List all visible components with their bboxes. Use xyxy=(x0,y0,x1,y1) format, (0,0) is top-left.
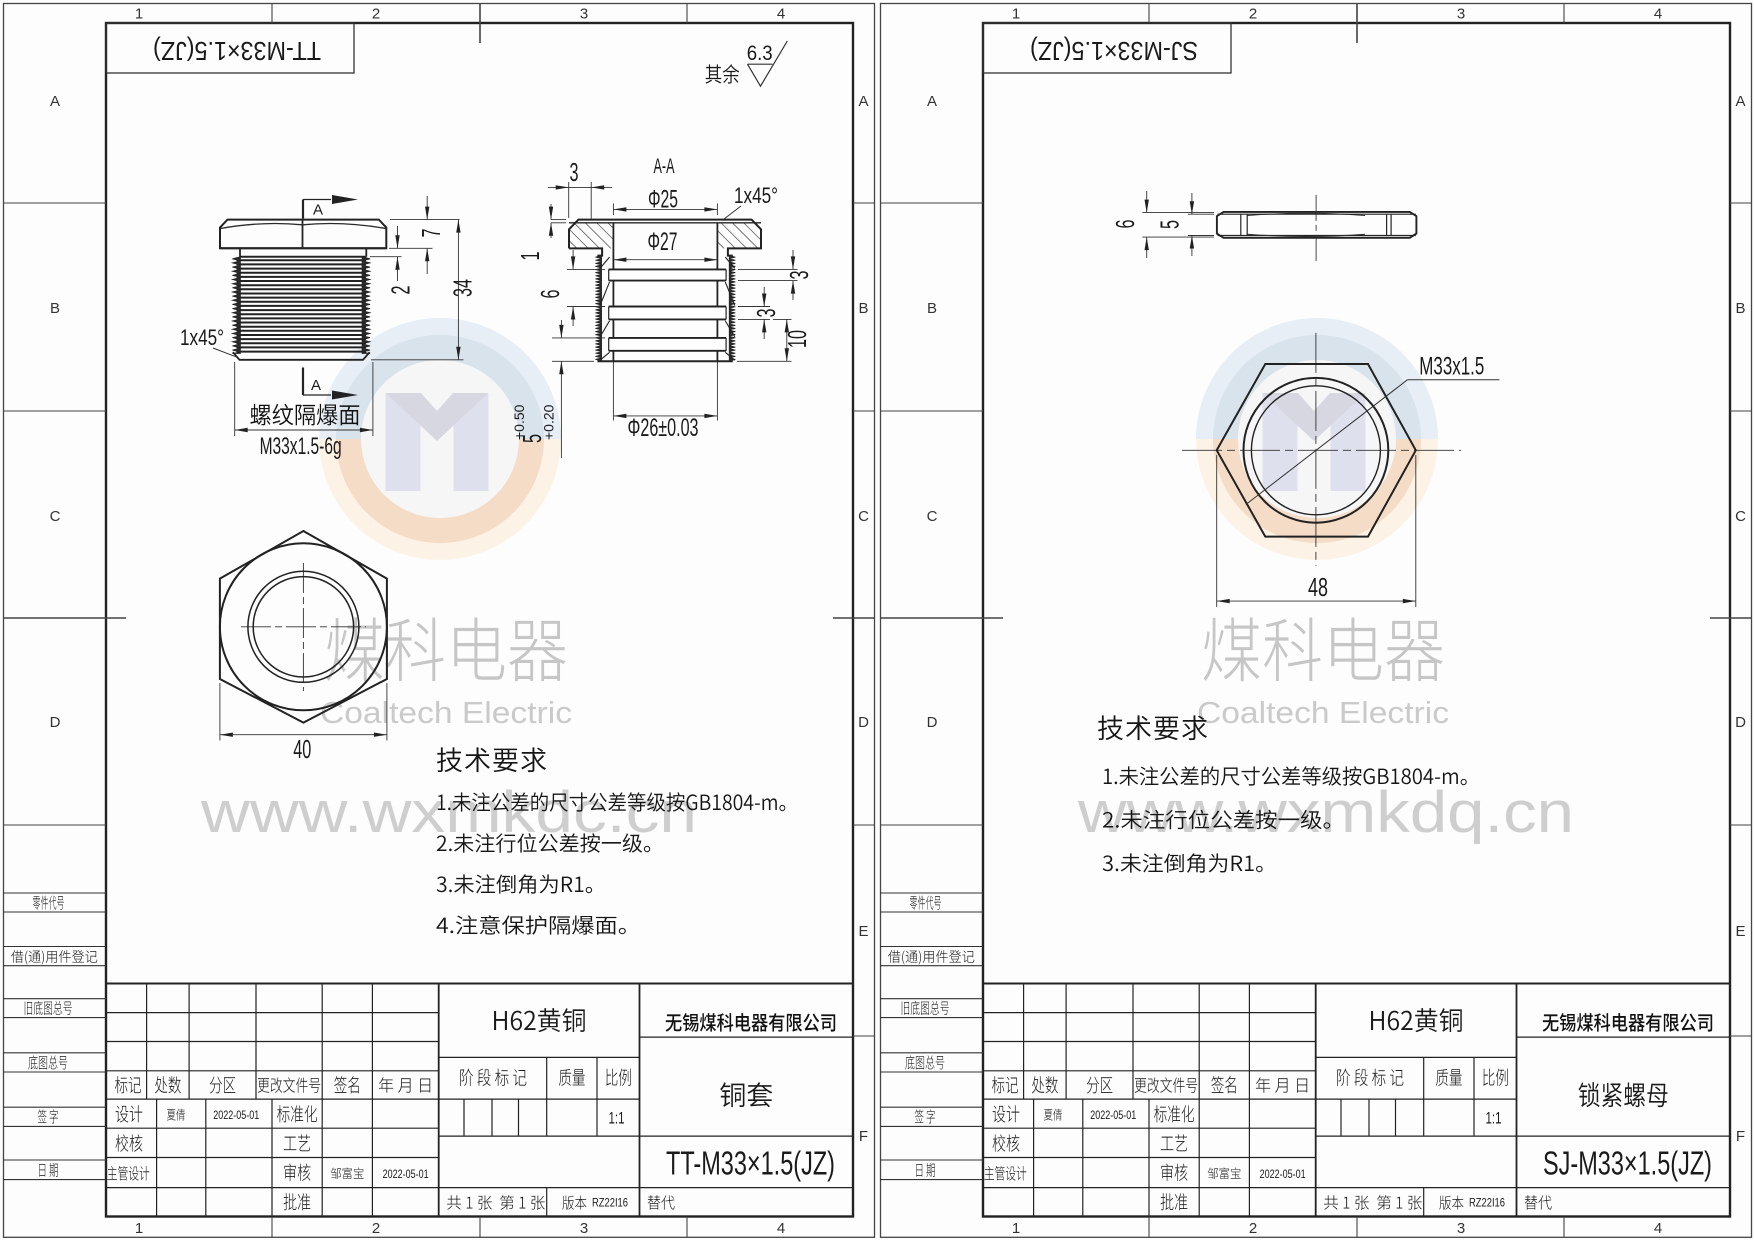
svg-text:2022-05-01: 2022-05-01 xyxy=(1090,1108,1136,1122)
svg-text:TT-M33×1.5(JZ): TT-M33×1.5(JZ) xyxy=(666,1145,835,1182)
svg-text:A: A xyxy=(313,202,323,219)
svg-text:D: D xyxy=(1735,714,1746,731)
svg-text:A: A xyxy=(1735,93,1745,110)
svg-text:3: 3 xyxy=(784,271,814,280)
svg-text:4: 4 xyxy=(777,6,785,23)
svg-text:A: A xyxy=(927,93,937,110)
svg-text:A-A: A-A xyxy=(654,155,675,178)
svg-text:1: 1 xyxy=(135,1220,143,1237)
svg-text:3: 3 xyxy=(1457,1220,1465,1237)
svg-text:www.wxmkdc.cn: www.wxmkdc.cn xyxy=(200,780,697,845)
svg-text:SJ-M33×1.5(JZ): SJ-M33×1.5(JZ) xyxy=(1543,1145,1712,1182)
svg-text:+0.20: +0.20 xyxy=(541,404,557,440)
svg-text:4: 4 xyxy=(777,1220,785,1237)
svg-text:F: F xyxy=(859,1128,868,1145)
svg-text:2: 2 xyxy=(372,6,380,23)
svg-text:3: 3 xyxy=(580,1220,588,1237)
svg-text:M33x1.5-6g: M33x1.5-6g xyxy=(260,433,342,460)
svg-text:C: C xyxy=(1735,508,1746,525)
svg-text:3: 3 xyxy=(580,6,588,23)
svg-text:+0.50: +0.50 xyxy=(511,404,527,440)
svg-text:TT-M33×1.5(JZ): TT-M33×1.5(JZ) xyxy=(153,36,321,66)
svg-text:E: E xyxy=(1735,923,1745,940)
svg-text:34: 34 xyxy=(448,279,478,297)
svg-text:2: 2 xyxy=(1249,6,1257,23)
svg-text:D: D xyxy=(858,714,869,731)
svg-text:3: 3 xyxy=(570,157,579,187)
svg-text:D: D xyxy=(927,714,938,731)
svg-text:1x45°: 1x45° xyxy=(734,183,778,208)
svg-text:B: B xyxy=(1735,300,1745,317)
svg-text:B: B xyxy=(927,300,937,317)
svg-text:D: D xyxy=(50,714,61,731)
svg-text:E: E xyxy=(858,923,868,940)
svg-text:1: 1 xyxy=(515,252,545,261)
svg-text:6: 6 xyxy=(1110,220,1140,229)
svg-text:RZ22I16: RZ22I16 xyxy=(1469,1196,1505,1210)
svg-text:B: B xyxy=(858,300,868,317)
svg-text:3: 3 xyxy=(751,309,781,318)
svg-text:6.3: 6.3 xyxy=(747,42,773,65)
svg-text:Φ25: Φ25 xyxy=(648,186,678,214)
svg-text:C: C xyxy=(858,508,869,525)
svg-text:SJ-M33×1.5(JZ): SJ-M33×1.5(JZ) xyxy=(1030,36,1198,66)
svg-text:5: 5 xyxy=(1155,220,1185,229)
svg-text:RZ22I16: RZ22I16 xyxy=(592,1196,628,1210)
svg-text:2: 2 xyxy=(386,286,416,295)
svg-text:1: 1 xyxy=(1012,6,1020,23)
svg-text:F: F xyxy=(1736,1128,1745,1145)
svg-text:4: 4 xyxy=(1654,1220,1662,1237)
svg-text:1: 1 xyxy=(135,6,143,23)
svg-text:2: 2 xyxy=(372,1220,380,1237)
svg-text:C: C xyxy=(927,508,938,525)
svg-text:2022-05-01: 2022-05-01 xyxy=(383,1167,429,1181)
svg-text:A: A xyxy=(50,93,60,110)
svg-text:2022-05-01: 2022-05-01 xyxy=(1260,1167,1306,1181)
svg-text:2: 2 xyxy=(1249,1220,1257,1237)
svg-text:1:1: 1:1 xyxy=(1486,1109,1502,1128)
svg-text:M33x1.5: M33x1.5 xyxy=(1419,353,1484,381)
svg-text:A: A xyxy=(858,93,868,110)
svg-text:3: 3 xyxy=(1457,6,1465,23)
svg-text:Coaltech Electric: Coaltech Electric xyxy=(320,695,572,730)
svg-text:6: 6 xyxy=(535,290,565,299)
svg-text:C: C xyxy=(50,508,61,525)
svg-text:www.wxmkdq.cn: www.wxmkdq.cn xyxy=(1077,780,1574,845)
svg-text:1x45°: 1x45° xyxy=(180,325,224,350)
svg-text:Coaltech Electric: Coaltech Electric xyxy=(1197,695,1449,730)
svg-text:1: 1 xyxy=(1012,1220,1020,1237)
svg-text:10: 10 xyxy=(782,330,812,348)
svg-text:Φ26±0.03: Φ26±0.03 xyxy=(628,414,699,442)
svg-text:B: B xyxy=(50,300,60,317)
svg-text:7: 7 xyxy=(416,229,446,238)
svg-text:Φ27: Φ27 xyxy=(648,228,678,256)
svg-text:40: 40 xyxy=(293,734,311,764)
svg-text:48: 48 xyxy=(1308,572,1328,602)
svg-text:4: 4 xyxy=(1654,6,1662,23)
svg-text:1:1: 1:1 xyxy=(609,1109,625,1128)
svg-text:A: A xyxy=(311,377,321,394)
svg-text:2022-05-01: 2022-05-01 xyxy=(213,1108,259,1122)
